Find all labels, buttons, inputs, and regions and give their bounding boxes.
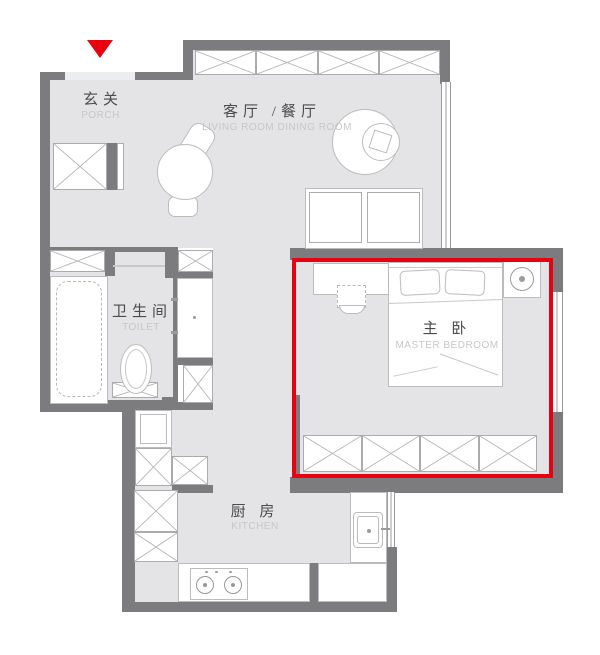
toilet-label-en: TOILET — [102, 322, 180, 333]
master-bedroom-highlight-box[interactable] — [292, 258, 553, 478]
bathtub-inner — [56, 281, 102, 397]
bath-cabinet-top-left — [50, 250, 105, 272]
wall-living-right-top — [440, 40, 450, 84]
porch-cabinet-divider — [107, 143, 117, 190]
kitchen-sink — [353, 512, 383, 548]
sink-drain — [367, 529, 371, 533]
wall-porch-top-right — [135, 72, 185, 80]
utility-cabinet — [134, 490, 178, 532]
window-pane — [318, 50, 379, 75]
wall-kitchen-bottom — [122, 602, 397, 612]
utility-cabinet — [172, 456, 208, 485]
toilet — [120, 344, 152, 394]
stove-knob — [215, 571, 218, 573]
stove-knob — [229, 571, 232, 573]
stove-burner — [224, 576, 242, 594]
toilet-seat — [125, 349, 147, 389]
wall-left — [40, 72, 50, 410]
bath-cabinet-top-right — [178, 250, 213, 272]
living-dining-label-en: LIVING ROOM DINING ROOM — [192, 122, 362, 133]
sofa-cushion — [367, 192, 420, 243]
bathtub — [50, 276, 108, 404]
porch-bench — [117, 143, 124, 190]
window-pane — [379, 50, 440, 75]
wall-bath-bottom-step — [162, 397, 178, 410]
living-room-right-window — [441, 82, 451, 248]
window-pane — [195, 50, 256, 75]
sofa-cushion — [309, 192, 362, 243]
entry-marker-triangle — [87, 40, 113, 58]
stove-knob — [205, 571, 208, 573]
wall-kitchen-right-lower — [387, 547, 397, 612]
living-room-top-window — [195, 50, 440, 75]
entry-door-opening — [65, 72, 135, 80]
dining-table — [157, 144, 213, 200]
gas-stove — [190, 568, 248, 600]
window-pane — [256, 50, 317, 75]
fridge-door — [140, 414, 167, 444]
kitchen-label-cn: 厨 房 — [215, 500, 295, 521]
porch-label-en: PORCH — [63, 110, 138, 121]
door-knob-dot — [193, 316, 196, 319]
wall-bath-post-left — [105, 247, 115, 276]
wall-counter-gap — [310, 563, 318, 602]
utility-cabinet — [135, 448, 172, 486]
wall-kitchen-stub — [172, 485, 213, 493]
living-dining-label-cn: 客厅 /餐厅 — [197, 100, 347, 121]
wall-column-bottom — [178, 402, 213, 410]
wall-living-top — [183, 40, 450, 50]
porch-shoe-cabinet — [53, 143, 107, 190]
kitchen-label-en: KITCHEN — [215, 521, 295, 532]
utility-cabinet — [134, 532, 178, 562]
stove-burner — [196, 576, 214, 594]
kitchen-counter-bottom-right — [318, 563, 387, 602]
wall-bedroom-bottom — [290, 477, 563, 493]
toilet-label-cn: 卫生间 — [102, 300, 182, 321]
bath-door-track — [113, 265, 165, 267]
kitchen-right-window — [387, 492, 395, 547]
sink-faucet — [381, 528, 390, 530]
fridge — [135, 410, 172, 448]
wall-vanity-strip-bottom — [173, 357, 213, 365]
porch-label-cn: 玄关 — [63, 88, 143, 109]
bath-cabinet-bottom — [183, 365, 213, 403]
floor-plan: 玄关 PORCH 客厅 /餐厅 LIVING ROOM DINING ROOM … — [0, 0, 600, 655]
